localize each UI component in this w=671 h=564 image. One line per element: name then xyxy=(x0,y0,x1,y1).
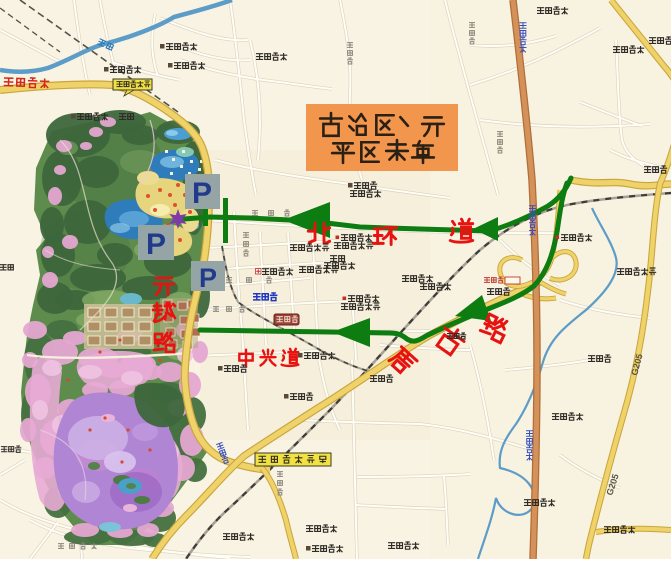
svg-text:P: P xyxy=(199,263,217,293)
svg-text:P: P xyxy=(192,177,212,210)
svg-text:P: P xyxy=(146,228,166,261)
